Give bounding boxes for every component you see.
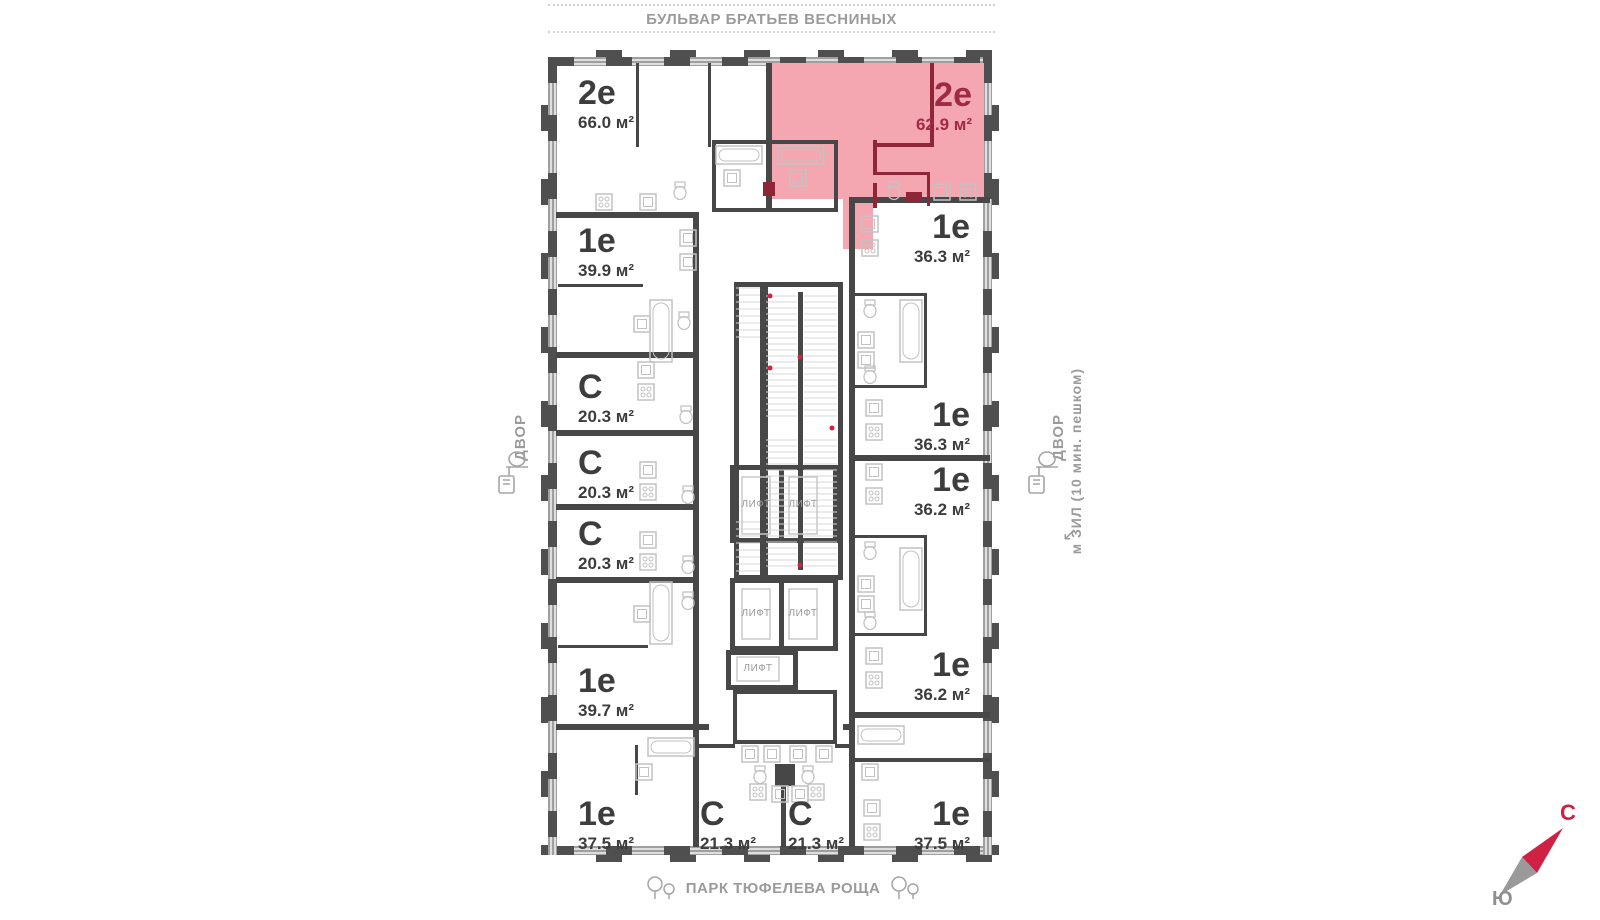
unit-type: 1е [852, 648, 970, 682]
unit-1e-37-5-right[interactable]: 1е 37.5 м² [852, 797, 970, 852]
lamp-icon-left [496, 450, 530, 500]
metro-arrow-icon: ↙ [1062, 524, 1077, 545]
unit-1e-39-9[interactable]: 1е 39.9 м² [578, 224, 634, 279]
unit-type: 1е [578, 224, 634, 258]
unit-1e-36-3-b[interactable]: 1е 36.3 м² [852, 398, 970, 453]
lift-label-2: ЛИФТ [781, 499, 825, 510]
compass-south-label: Ю [1492, 888, 1513, 910]
unit-type: 1е [852, 797, 970, 831]
lift-label-5: ЛИФТ [736, 663, 780, 674]
floor-plan-page: БУЛЬВАР БРАТЬЕВ ВЕСНИНЫХ [0, 0, 1600, 920]
trees-icon-left [646, 876, 676, 900]
unit-area: 20.3 м² [578, 555, 634, 572]
unit-s-20-3-c[interactable]: С 20.3 м² [578, 517, 634, 572]
park-label: ПАРК ТЮФЕЛЕВА РОЩА [686, 880, 881, 897]
trees-icon-right [890, 876, 920, 900]
unit-area: 39.9 м² [578, 262, 634, 279]
compass-north-label: С [1560, 800, 1576, 825]
unit-1e-39-7[interactable]: 1е 39.7 м² [578, 664, 634, 719]
lift-label-3: ЛИФТ [734, 608, 778, 619]
unit-area: 37.5 м² [578, 835, 634, 852]
unit-2e-66-0[interactable]: 2е 66.0 м² [578, 76, 634, 131]
unit-area: 20.3 м² [578, 408, 634, 425]
unit-type: 2е [578, 76, 634, 110]
unit-s-20-3-a[interactable]: С 20.3 м² [578, 370, 634, 425]
unit-s-20-3-b[interactable]: С 20.3 м² [578, 446, 634, 501]
stair-treads [736, 288, 837, 571]
unit-area: 36.3 м² [852, 436, 970, 453]
unit-area: 36.2 м² [852, 501, 970, 518]
unit-type: 1е [852, 463, 970, 497]
unit-s-21-3-a[interactable]: С 21.3 м² [700, 797, 756, 852]
unit-type: 1е [578, 664, 634, 698]
unit-2e-62-9-highlighted[interactable]: 2е 62.9 м² [852, 78, 972, 133]
unit-area: 62.9 м² [852, 116, 972, 133]
unit-area: 66.0 м² [578, 114, 634, 131]
unit-type: С [578, 370, 634, 404]
unit-type: 1е [578, 797, 634, 831]
unit-1e-36-2-a[interactable]: 1е 36.2 м² [852, 463, 970, 518]
unit-type: 1е [852, 210, 970, 244]
unit-type: С [578, 446, 634, 480]
unit-area: 39.7 м² [578, 702, 634, 719]
unit-area: 21.3 м² [788, 835, 844, 852]
compass: С Ю [1480, 775, 1600, 915]
unit-type: 1е [852, 398, 970, 432]
unit-1e-36-3-a[interactable]: 1е 36.3 м² [852, 210, 970, 265]
floor-plan-drawing [0, 0, 1600, 920]
lamp-icon-right [1026, 450, 1060, 500]
park-label-row: ПАРК ТЮФЕЛЕВА РОЩА [548, 876, 1018, 900]
unit-area: 36.3 м² [852, 248, 970, 265]
lift-label-1: ЛИФТ [734, 499, 778, 510]
unit-type: 2е [852, 78, 972, 112]
unit-area: 37.5 м² [852, 835, 970, 852]
unit-area: 21.3 м² [700, 835, 756, 852]
unit-type: С [788, 797, 844, 831]
unit-area: 20.3 м² [578, 484, 634, 501]
unit-s-21-3-b[interactable]: С 21.3 м² [788, 797, 844, 852]
unit-1e-37-5-left[interactable]: 1е 37.5 м² [578, 797, 634, 852]
unit-area: 36.2 м² [852, 686, 970, 703]
unit-type: С [700, 797, 756, 831]
lift-label-4: ЛИФТ [781, 608, 825, 619]
unit-type: С [578, 517, 634, 551]
unit-1e-36-2-b[interactable]: 1е 36.2 м² [852, 648, 970, 703]
